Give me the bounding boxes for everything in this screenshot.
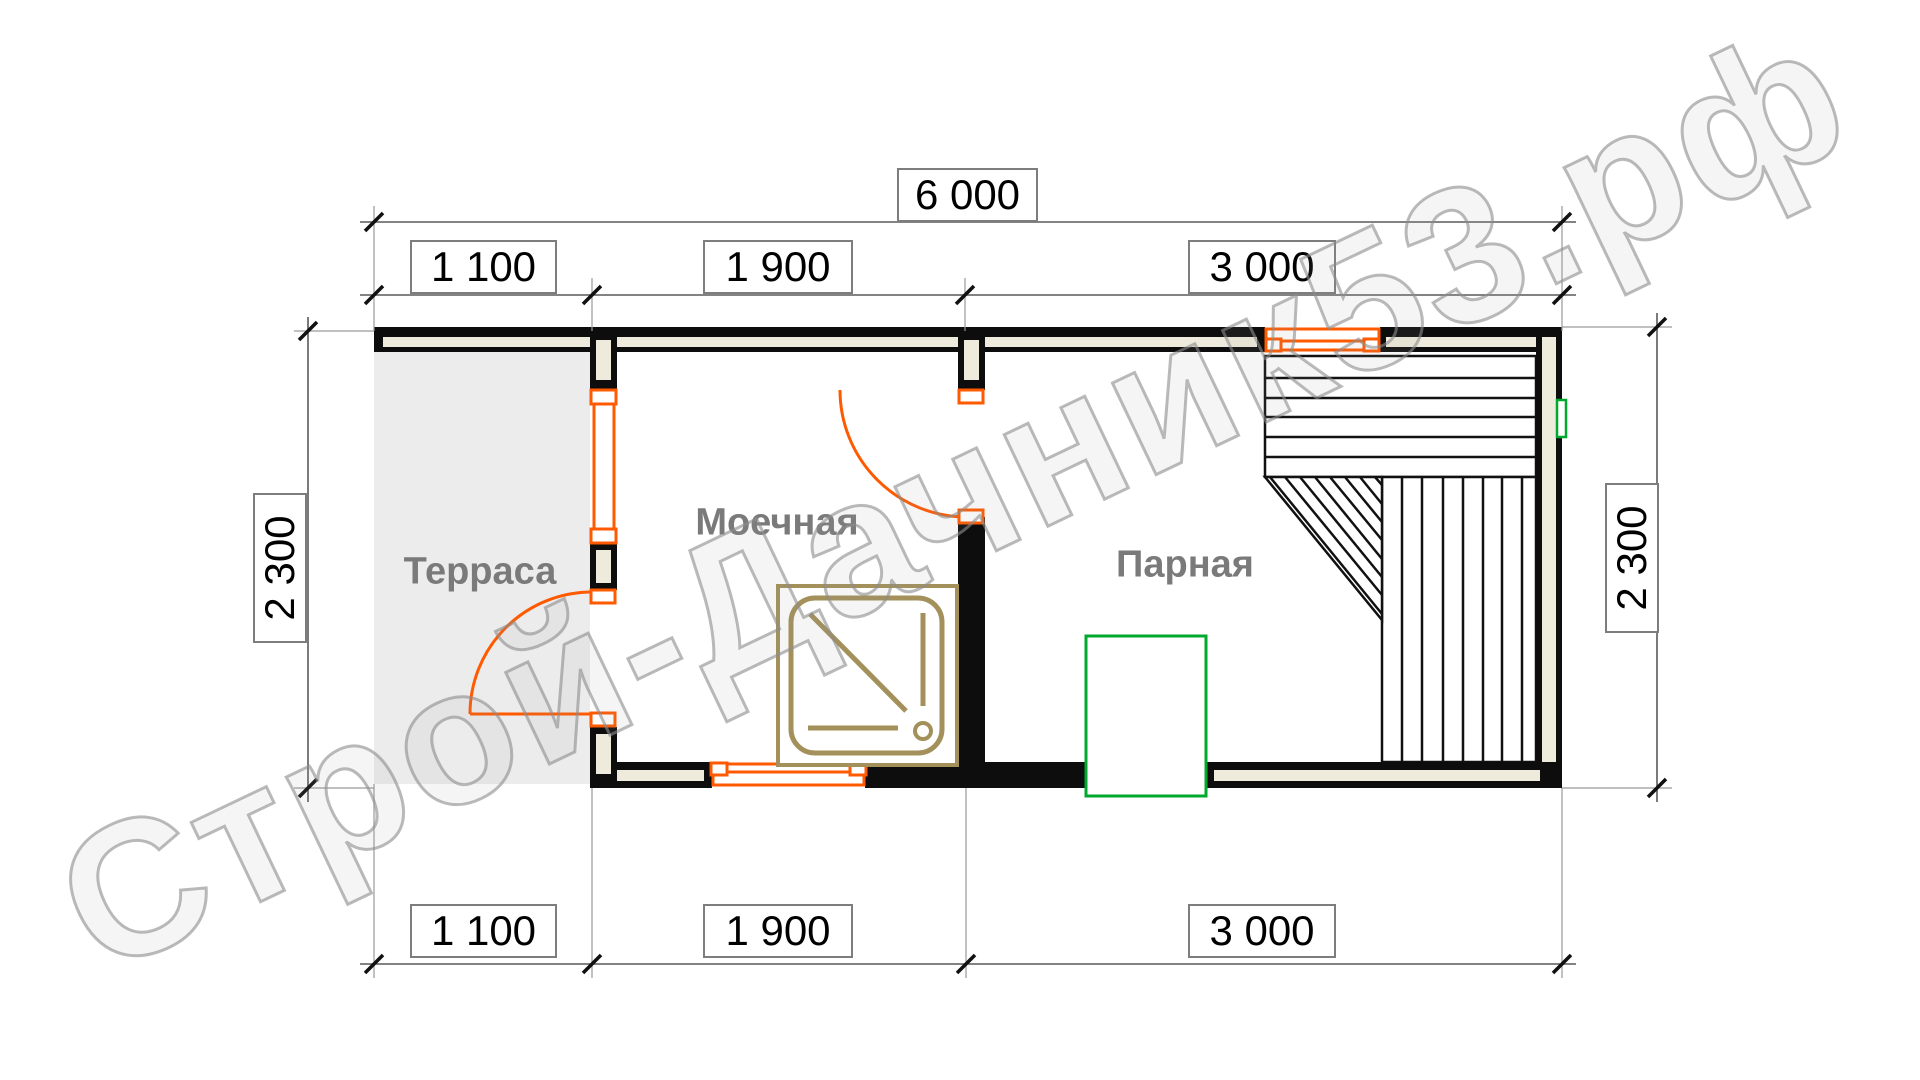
dim-bottom-segment-1900: 1 900 xyxy=(703,904,853,958)
room-label-terrace: Терраса xyxy=(404,551,557,594)
window-partition-icon xyxy=(591,390,616,543)
vent-icon xyxy=(1557,400,1566,437)
dim-right-height: 2 300 xyxy=(1605,483,1659,633)
dim-top-segment-3000: 3 000 xyxy=(1188,240,1336,294)
room-label-washroom: Моечная xyxy=(695,502,858,545)
dim-top-segment-1100: 1 100 xyxy=(410,240,557,294)
dim-bottom-segment-3000: 3 000 xyxy=(1188,904,1336,958)
shower-tray-icon xyxy=(778,586,957,765)
stove-icon xyxy=(1086,636,1206,796)
dim-top-segment-1900: 1 900 xyxy=(703,240,853,294)
bench-right-icon xyxy=(1382,477,1536,762)
dim-bottom-segment-1100: 1 100 xyxy=(410,904,557,958)
room-label-steam-room: Парная xyxy=(1116,544,1254,587)
bench-top-icon xyxy=(1265,356,1536,477)
dim-total-width: 6 000 xyxy=(897,168,1038,222)
dim-left-height: 2 300 xyxy=(253,493,307,643)
right-wall xyxy=(1536,327,1562,788)
window-top-icon xyxy=(1265,327,1380,352)
bench-corner-icon xyxy=(1265,477,1382,620)
floor-plan-page: 6 000 1 100 1 900 3 000 1 100 1 900 3 00… xyxy=(0,0,1920,1080)
door-arc-steam-icon xyxy=(840,390,983,523)
